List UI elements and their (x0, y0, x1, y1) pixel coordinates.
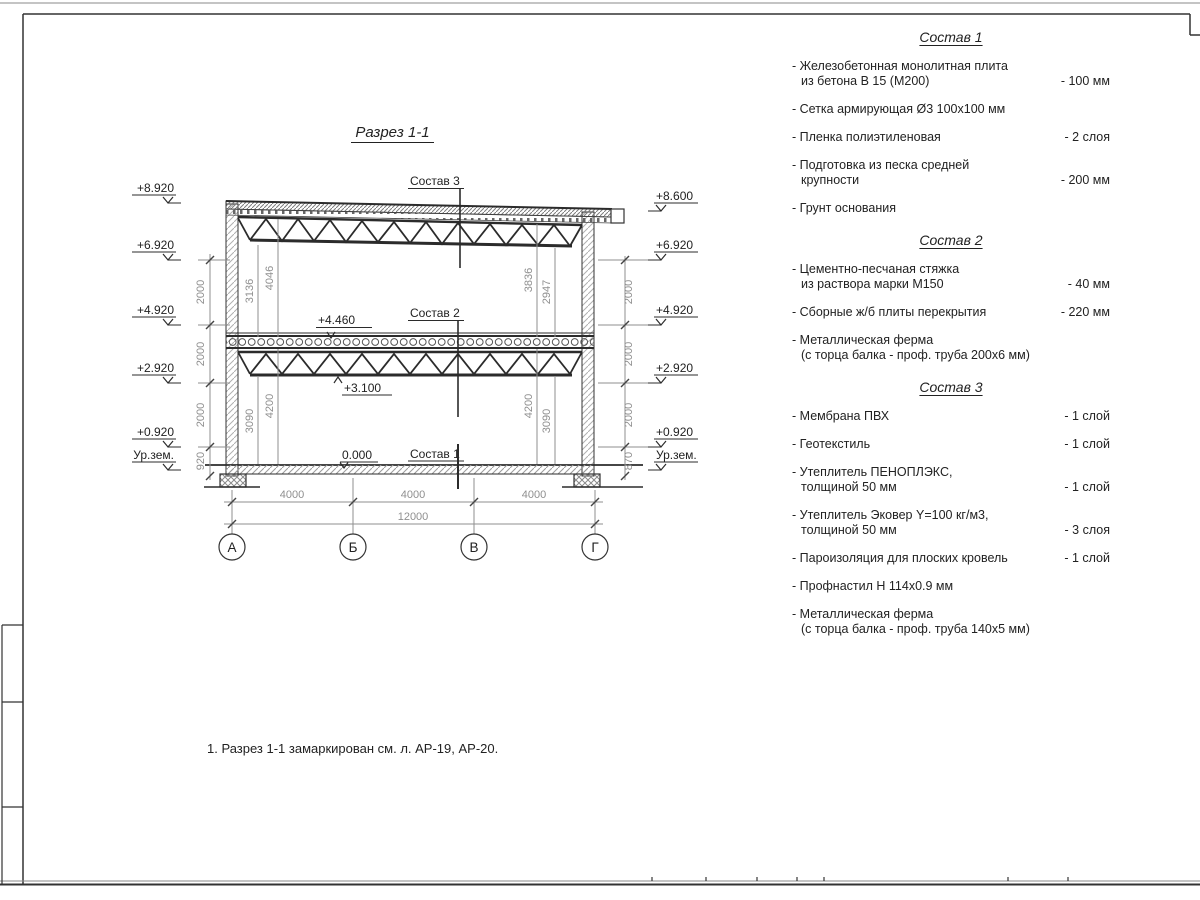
composition-3-heading: Состав 3 (792, 380, 1110, 395)
dim-label: 2000 (195, 403, 207, 427)
list-item: - Цементно-песчаная стяжкаиз раствора ма… (792, 262, 1110, 292)
elevation-mark-zero: 0.000 (342, 448, 372, 462)
dim-label: 920 (195, 452, 207, 470)
right-dimension-chain: 2000 2000 2000 870 (598, 256, 648, 480)
axis-label: В (469, 540, 478, 555)
dim-label: 4200 (264, 394, 276, 418)
dim-label: 870 (623, 452, 635, 470)
axis-bubbles: А Б В Г (219, 534, 608, 560)
dim-label: 2000 (195, 342, 207, 366)
ground-level-label: Ур.зем. (133, 448, 174, 462)
list-item: - Подготовка из песка среднейкрупности -… (792, 158, 1110, 188)
dim-label: 2947 (541, 280, 553, 304)
list-item: - Металлическая ферма(с торца балка - пр… (792, 607, 1110, 637)
elevation-mark-3100: +3.100 (344, 381, 381, 395)
ground-slab (204, 465, 643, 487)
list-item: - Грунт основания (792, 201, 1110, 216)
list-item: - Металлическая ферма(с торца балка - пр… (792, 333, 1110, 363)
left-elevation-marks: +8.920 +6.920 +4.920 +2.920 +0.920 Ур.зе… (132, 181, 181, 470)
dim-label: 4000 (280, 489, 304, 501)
left-foundation (220, 474, 246, 487)
elevation-label: +4.920 (137, 303, 174, 317)
hollow-core-slab (226, 336, 594, 348)
dim-label: 2000 (623, 280, 635, 304)
sostav2-label: Состав 2 (410, 306, 460, 320)
sheet-note: 1. Разрез 1-1 замаркирован см. л. АР-19,… (207, 741, 498, 756)
list-item: - Пленка полиэтиленовая - 2 слоя (792, 130, 1110, 145)
roof-edge-plate (611, 209, 624, 223)
list-item: - Профнастил Н 114х0.9 мм (792, 579, 1110, 594)
dim-label: 3836 (523, 268, 535, 292)
elevation-label: +6.920 (137, 238, 174, 252)
dim-label: 3090 (244, 409, 256, 433)
composition-panel: Состав 1 - Железобетонная монолитная пли… (792, 30, 1110, 650)
dim-label: 2000 (623, 403, 635, 427)
dim-label: 2000 (195, 280, 207, 304)
dim-label: 4200 (523, 394, 535, 418)
left-dimension-chain: 2000 2000 2000 920 (195, 254, 230, 480)
list-item: - Сборные ж/б плиты перекрытия - 220 мм (792, 305, 1110, 320)
composition-2-heading: Состав 2 (792, 233, 1110, 248)
elevation-label: +0.920 (656, 425, 693, 439)
axis-label: Г (591, 540, 599, 555)
list-item: - Железобетонная монолитная плитаиз бето… (792, 59, 1110, 89)
list-item: - Геотекстиль - 1 слой (792, 437, 1110, 452)
list-item: - Мембрана ПВХ - 1 слой (792, 409, 1110, 424)
building-section (204, 201, 643, 487)
middle-floor (226, 333, 594, 375)
floor-truss (238, 352, 582, 375)
axis-label: Б (349, 540, 358, 555)
sostav3-label: Состав 3 (410, 174, 460, 188)
axis-label: А (227, 540, 236, 555)
dim-label: 4000 (522, 489, 546, 501)
list-item: - Утеплитель Эковер Y=100 кг/м3,толщиной… (792, 508, 1110, 538)
roof-assembly (226, 201, 624, 246)
bottom-dimensions: 4000 4000 4000 12000 (224, 478, 603, 534)
dim-label: 3136 (244, 279, 256, 303)
dim-label: 4046 (264, 266, 276, 290)
dim-label: 4000 (401, 489, 425, 501)
elevation-label: +0.920 (137, 425, 174, 439)
drawing-title: Разрез 1-1 (310, 124, 475, 141)
elevation-label: +8.600 (656, 189, 693, 203)
drawing-sheet: Состав 3 Состав 2 Состав 1 +4.460 +3.100… (0, 0, 1200, 900)
elevation-label: +4.920 (656, 303, 693, 317)
dim-label: 2000 (623, 342, 635, 366)
elevation-label: +6.920 (656, 238, 693, 252)
elevation-mark-4460: +4.460 (318, 313, 355, 327)
elevation-label: +2.920 (137, 361, 174, 375)
ground-level-label: Ур.зем. (656, 448, 697, 462)
sostav1-label: Состав 1 (410, 447, 460, 461)
composition-1-heading: Состав 1 (792, 30, 1110, 45)
dim-label-total: 12000 (398, 511, 429, 523)
title-block-top-ticks (652, 877, 1068, 881)
elevation-label: +2.920 (656, 361, 693, 375)
right-foundation (574, 474, 600, 487)
list-item: - Утеплитель ПЕНОПЛЭКС,толщиной 50 мм - … (792, 465, 1110, 495)
dim-label: 3090 (541, 409, 553, 433)
list-item: - Сетка армирующая Ø3 100х100 мм (792, 102, 1110, 117)
right-elevation-marks: +8.600 +6.920 +4.920 +2.920 +0.920 Ур.зе… (648, 189, 698, 470)
elevation-label: +8.920 (137, 181, 174, 195)
list-item: - Пароизоляция для плоских кровель - 1 с… (792, 551, 1110, 566)
